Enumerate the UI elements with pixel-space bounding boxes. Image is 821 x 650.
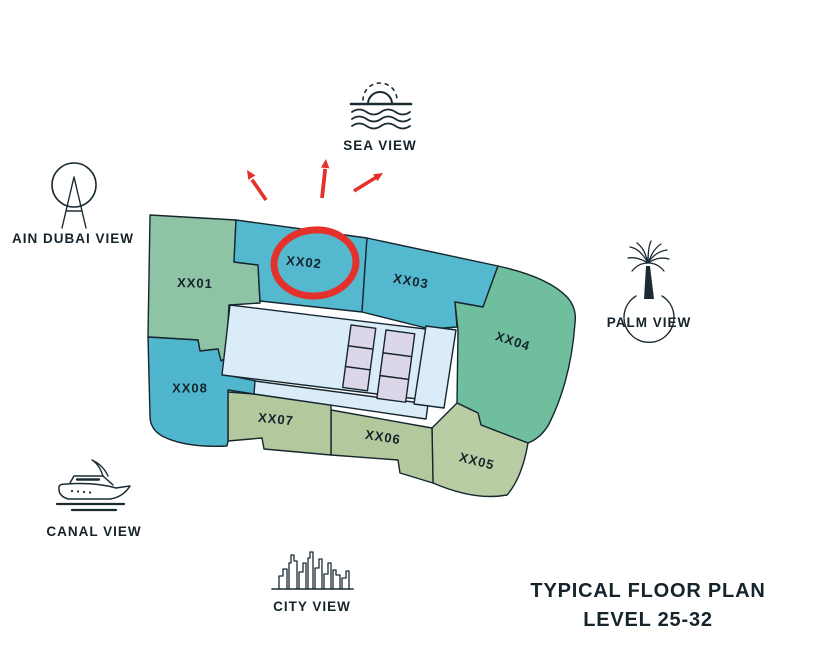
- plan-title-line2: LEVEL 25-32: [583, 609, 713, 631]
- city-view-marker: CITY VIEW: [272, 552, 353, 614]
- city-view-label: CITY VIEW: [273, 599, 351, 614]
- unit-region-xx06[interactable]: [331, 410, 433, 483]
- elevator-cell: [345, 346, 373, 370]
- sea-arrow-right: [354, 173, 383, 191]
- floor-plan-page: XX01 XX02 XX03 XX04 XX05 XX06 XX07 XX08: [0, 0, 821, 650]
- ain-dubai-view-label: AIN DUBAI VIEW: [12, 231, 134, 246]
- elevator-cell: [377, 376, 409, 403]
- plan-title-line1: TYPICAL FLOOR PLAN: [530, 580, 765, 602]
- sea-arrow-middle: [321, 159, 329, 198]
- canal-view-label: CANAL VIEW: [46, 524, 141, 539]
- ain-dubai-view-marker: AIN DUBAI VIEW: [12, 163, 134, 246]
- sea-view-marker: SEA VIEW: [343, 83, 417, 153]
- unit-label-xx01: XX01: [177, 275, 213, 291]
- canal-view-marker: CANAL VIEW: [46, 460, 141, 539]
- canal-view-icon: [57, 460, 130, 510]
- floor-plan-canvas: XX01 XX02 XX03 XX04 XX05 XX06 XX07 XX08: [0, 0, 821, 650]
- sea-arrow-left: [247, 170, 266, 200]
- elevator-cell: [348, 325, 376, 349]
- sea-view-icon: [351, 83, 411, 129]
- palm-view-marker: PALM VIEW: [607, 241, 692, 342]
- sea-view-label: SEA VIEW: [343, 138, 417, 153]
- elevator-cell: [380, 353, 412, 380]
- ain-dubai-view-icon: [52, 163, 96, 228]
- unit-label-xx08: XX08: [172, 381, 208, 396]
- sea-direction-arrows: [247, 159, 383, 200]
- plan-title: TYPICAL FLOOR PLAN LEVEL 25-32: [530, 580, 765, 631]
- palm-view-label: PALM VIEW: [607, 315, 692, 330]
- elevator-cell: [383, 330, 415, 357]
- elevator-cell: [343, 367, 371, 391]
- city-view-icon: [272, 552, 353, 589]
